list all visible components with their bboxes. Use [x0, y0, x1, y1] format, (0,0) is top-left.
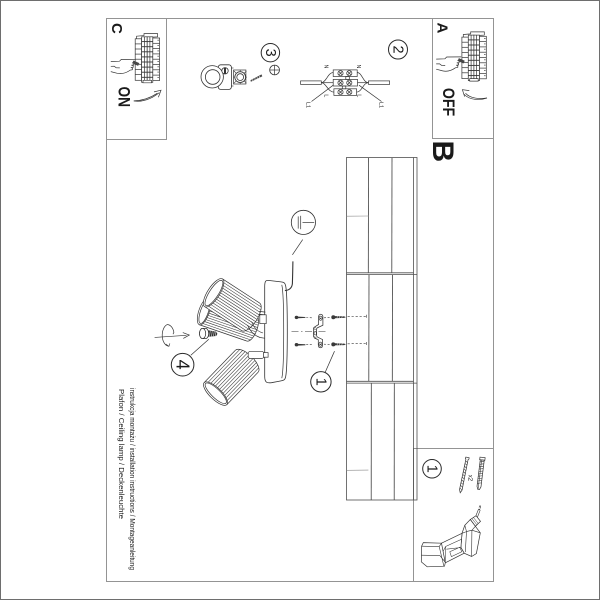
- svg-text:N: N: [323, 65, 329, 69]
- svg-text:3: 3: [262, 49, 278, 57]
- svg-text:L: L: [356, 94, 362, 97]
- svg-text:instrukcja montażu / installat: instrukcja montażu / installation instru…: [128, 388, 137, 570]
- svg-text:Plafon / Ceiling lamp / Decken: Plafon / Ceiling lamp / Deckenleuchte: [117, 389, 126, 519]
- svg-text:L1: L1: [305, 102, 311, 108]
- svg-text:ON: ON: [114, 87, 132, 108]
- svg-text:1: 1: [423, 465, 439, 473]
- svg-text:B: B: [426, 141, 459, 163]
- svg-text:A: A: [434, 23, 451, 34]
- svg-text:OFF: OFF: [439, 88, 457, 116]
- svg-text:2: 2: [390, 45, 406, 53]
- svg-text:1: 1: [312, 378, 328, 386]
- svg-text:N: N: [355, 65, 361, 69]
- svg-text:C: C: [108, 23, 125, 34]
- svg-text:L1: L1: [378, 102, 384, 108]
- svg-text:4: 4: [172, 360, 192, 370]
- svg-text:x2: x2: [466, 475, 472, 482]
- svg-text:L: L: [323, 94, 329, 97]
